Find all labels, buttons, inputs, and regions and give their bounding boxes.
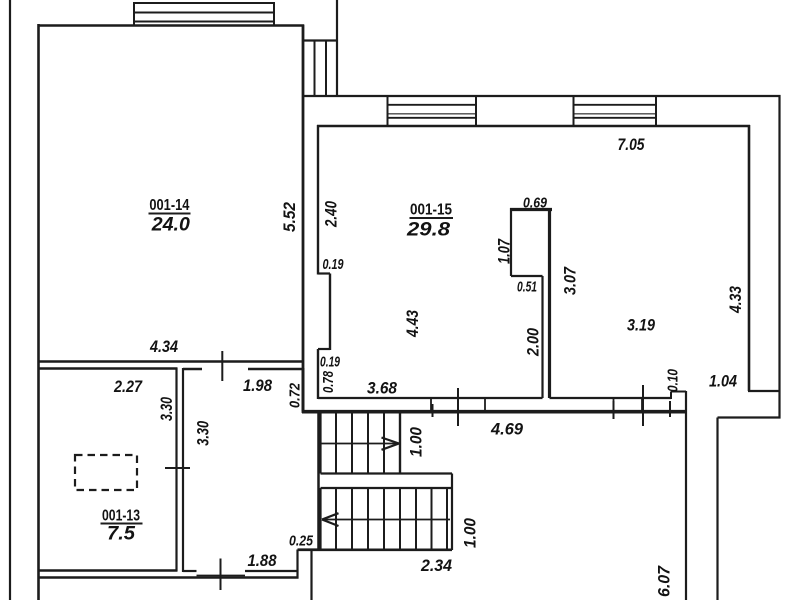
- svg-text:7.05: 7.05: [618, 135, 645, 154]
- svg-text:4.33: 4.33: [726, 286, 745, 314]
- svg-text:29.8: 29.8: [406, 219, 450, 241]
- svg-text:001-15: 001-15: [410, 201, 452, 218]
- svg-text:3.30: 3.30: [194, 420, 213, 445]
- svg-text:24.0: 24.0: [151, 214, 190, 236]
- svg-text:1.98: 1.98: [243, 376, 272, 395]
- svg-text:3.19: 3.19: [627, 316, 655, 335]
- svg-text:3.68: 3.68: [367, 379, 397, 398]
- svg-text:2.34: 2.34: [420, 556, 452, 575]
- svg-text:1.04: 1.04: [709, 372, 737, 391]
- svg-text:0.51: 0.51: [517, 278, 537, 295]
- svg-text:0.10: 0.10: [664, 368, 681, 392]
- svg-text:2.00: 2.00: [524, 328, 543, 357]
- svg-text:0.72: 0.72: [286, 382, 303, 408]
- svg-text:0.19: 0.19: [323, 256, 344, 273]
- svg-text:0.19: 0.19: [320, 353, 340, 370]
- svg-text:4.34: 4.34: [149, 337, 178, 356]
- svg-text:4.69: 4.69: [490, 420, 523, 439]
- svg-text:4.43: 4.43: [403, 310, 422, 338]
- svg-text:3.30: 3.30: [157, 397, 176, 421]
- svg-text:2.40: 2.40: [322, 201, 341, 228]
- svg-text:0.78: 0.78: [320, 371, 337, 393]
- svg-text:1.07: 1.07: [495, 238, 514, 264]
- svg-text:5.52: 5.52: [280, 202, 299, 232]
- svg-text:7.5: 7.5: [107, 523, 136, 545]
- svg-text:2.27: 2.27: [113, 377, 143, 396]
- svg-text:0.25: 0.25: [289, 532, 314, 549]
- svg-text:1.00: 1.00: [407, 427, 426, 457]
- svg-text:6.07: 6.07: [655, 565, 674, 597]
- svg-text:1.88: 1.88: [248, 551, 277, 570]
- svg-text:0.69: 0.69: [523, 194, 548, 211]
- svg-text:1.00: 1.00: [461, 518, 480, 548]
- svg-text:3.07: 3.07: [561, 266, 580, 295]
- svg-text:001-14: 001-14: [149, 197, 189, 214]
